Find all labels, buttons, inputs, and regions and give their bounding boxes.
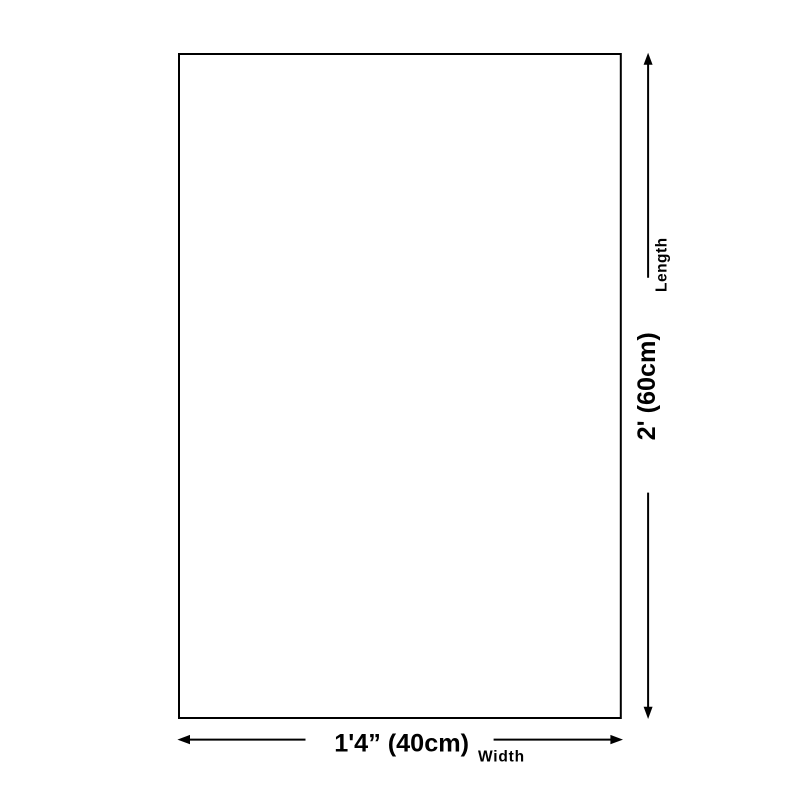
svg-text:Width: Width (478, 749, 525, 766)
svg-text:2' (60cm): 2' (60cm) (633, 332, 661, 440)
svg-text:1'4” (40cm): 1'4” (40cm) (334, 730, 469, 758)
svg-text:Length: Length (654, 237, 671, 292)
